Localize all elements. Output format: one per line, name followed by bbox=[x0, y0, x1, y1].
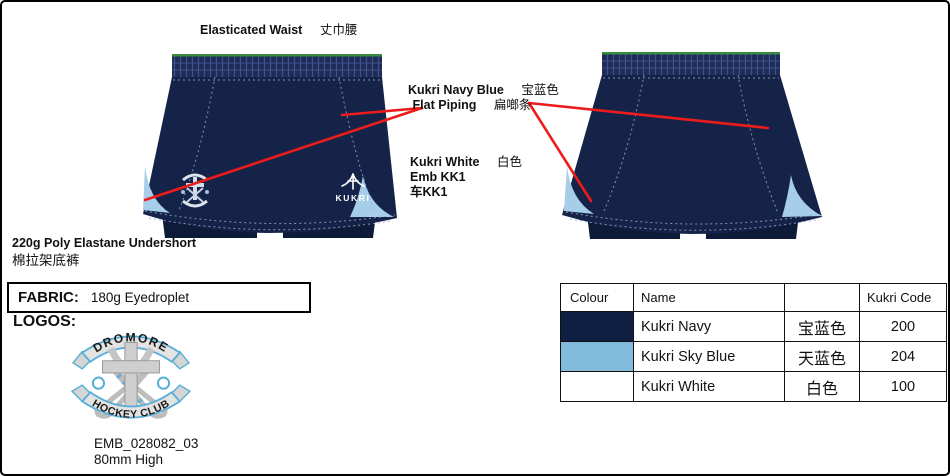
embroidery-spec: EMB_028082_03 80mm High bbox=[94, 436, 198, 468]
emb-ref: Emb KK1 bbox=[410, 170, 522, 185]
piping-type-en: Flat Piping bbox=[413, 98, 477, 112]
piping-type-zh: 扁啷条 bbox=[494, 98, 532, 112]
zh-white: 白色 bbox=[785, 372, 860, 402]
piping-annotation: Kukri Navy Blue 宝蓝色 Flat Piping 扁啷条 bbox=[408, 83, 536, 113]
logos-label: LOGOS: bbox=[13, 313, 76, 331]
elasticated-waist-label: Elasticated Waist 丈巾腰 bbox=[200, 23, 357, 38]
undershort-zh: 棉拉架底裤 bbox=[12, 252, 196, 269]
table-row-white: Kukri White 白色 100 bbox=[561, 372, 947, 402]
kukri-wordmark: KUKRI bbox=[336, 193, 371, 203]
table-row-navy: Kukri Navy 宝蓝色 200 bbox=[561, 312, 947, 342]
zh-navy: 宝蓝色 bbox=[785, 312, 860, 342]
elasticated-waist-en: Elasticated Waist bbox=[200, 23, 302, 37]
undershort-annotation: 220g Poly Elastane Undershort 棉拉架底裤 bbox=[12, 235, 196, 269]
back-skirt-body bbox=[562, 75, 822, 234]
emb-height: 80mm High bbox=[94, 452, 198, 468]
fabric-box: FABRIC: 180g Eyedroplet bbox=[7, 282, 311, 313]
elasticated-waist-zh: 丈巾腰 bbox=[320, 23, 358, 37]
name-white: Kukri White bbox=[634, 372, 785, 402]
swatch-navy bbox=[561, 312, 634, 342]
code-navy: 200 bbox=[860, 312, 947, 342]
fabric-value: 180g Eyedroplet bbox=[91, 290, 189, 305]
embroidery-annotation: Kukri White 白色 Emb KK1 车KK1 bbox=[410, 155, 522, 200]
swatch-white bbox=[561, 372, 634, 402]
header-colour: Colour bbox=[561, 284, 634, 312]
header-name: Name bbox=[634, 284, 785, 312]
fabric-label: FABRIC: bbox=[18, 289, 79, 306]
colour-table-header-row: Colour Name Kukri Code bbox=[561, 284, 947, 312]
emb-color-en: Kukri White bbox=[410, 155, 479, 169]
code-sky-blue: 204 bbox=[860, 342, 947, 372]
emb-color-zh: 白色 bbox=[497, 155, 522, 169]
emb-code: EMB_028082_03 bbox=[94, 436, 198, 452]
front-skirt-diagram: KUKRI bbox=[137, 50, 401, 246]
piping-color-zh: 宝蓝色 bbox=[521, 83, 559, 97]
header-kukri-code: Kukri Code bbox=[860, 284, 947, 312]
swatch-sky-blue bbox=[561, 342, 634, 372]
emb-stitch-ref: 车KK1 bbox=[410, 185, 522, 200]
front-waistband bbox=[172, 54, 382, 77]
name-sky-blue: Kukri Sky Blue bbox=[634, 342, 785, 372]
header-cn bbox=[785, 284, 860, 312]
zh-sky-blue: 天蓝色 bbox=[785, 342, 860, 372]
back-skirt-diagram bbox=[558, 44, 828, 244]
piping-color-en: Kukri Navy Blue bbox=[408, 83, 504, 97]
club-crest: DROMORE HOCKEY CLUB bbox=[70, 318, 192, 434]
undershort-en: 220g Poly Elastane Undershort bbox=[12, 235, 196, 252]
colour-table: Colour Name Kukri Code Kukri Navy 宝蓝色 20… bbox=[560, 283, 947, 402]
spec-sheet-canvas: Elasticated Waist 丈巾腰 bbox=[0, 0, 950, 476]
back-waistband bbox=[602, 52, 780, 75]
table-row-sky-blue: Kukri Sky Blue 天蓝色 204 bbox=[561, 342, 947, 372]
code-white: 100 bbox=[860, 372, 947, 402]
name-navy: Kukri Navy bbox=[634, 312, 785, 342]
